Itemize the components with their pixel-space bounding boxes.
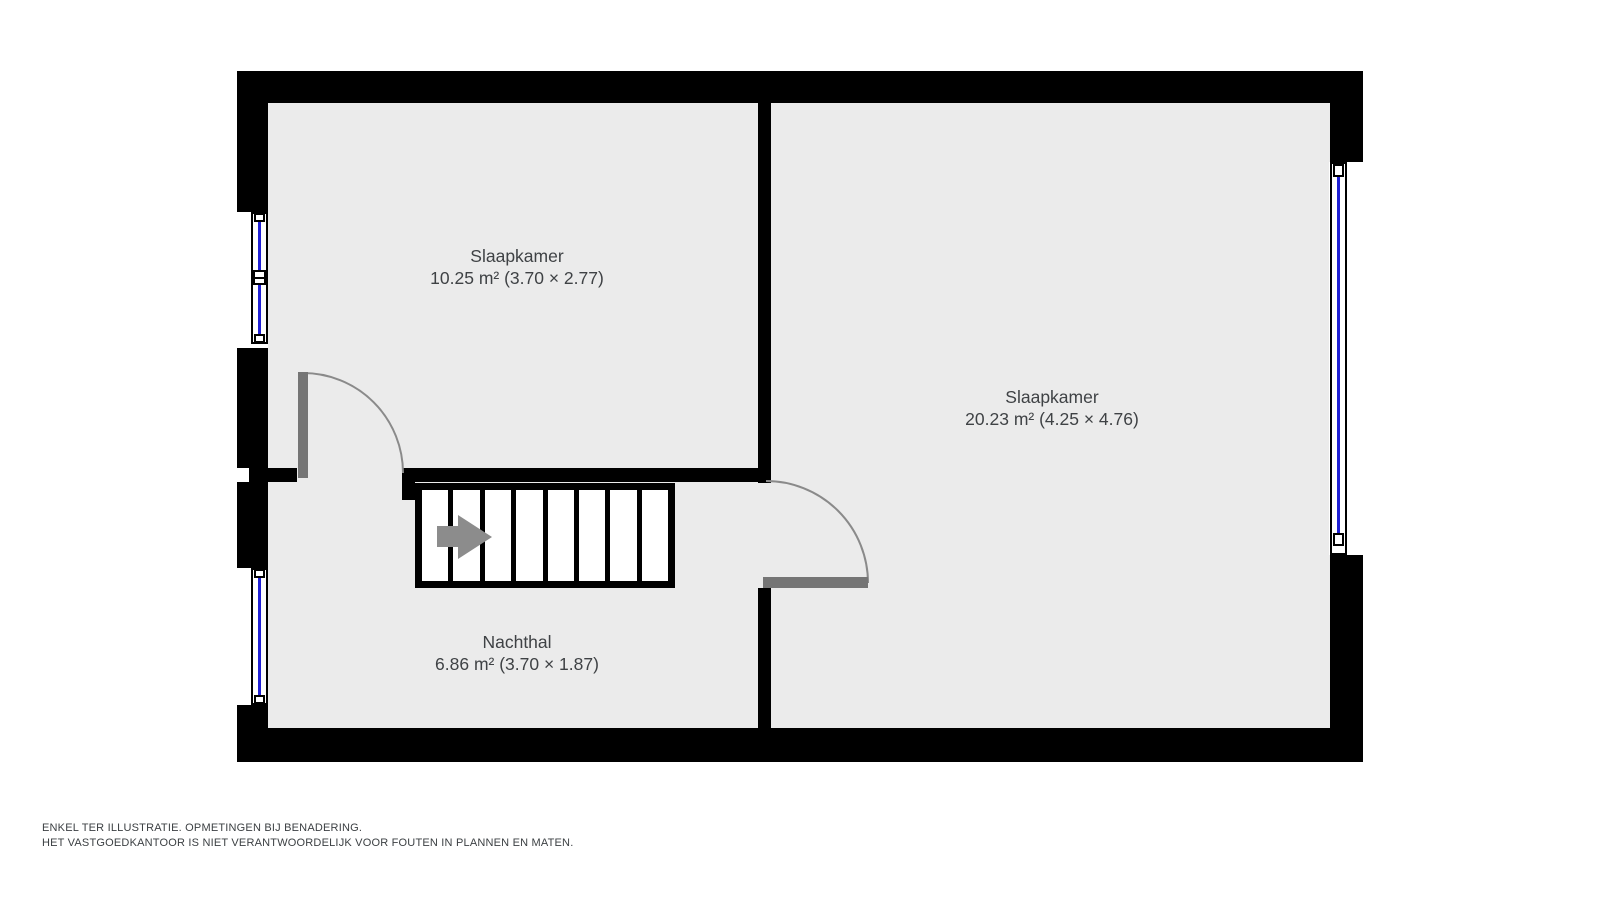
stair-tread	[548, 490, 574, 581]
room-size: 6.86 m² (3.70 × 1.87)	[435, 653, 599, 675]
stair-tread	[579, 490, 605, 581]
wall-above-stairs	[402, 468, 771, 482]
wall-hall-stub-left	[268, 468, 297, 482]
window-right-sash-bottom	[1333, 533, 1344, 546]
window-left-2-sash-bottom	[254, 695, 265, 704]
room-size: 10.25 m² (3.70 × 2.77)	[430, 267, 604, 289]
floor-area	[268, 103, 1330, 728]
room-name: Slaapkamer	[965, 386, 1139, 408]
sash-divider	[255, 277, 264, 279]
disclaimer-line-1: ENKEL TER ILLUSTRATIE. OPMETINGEN BIJ BE…	[42, 821, 573, 836]
stair-tread	[516, 490, 542, 581]
window-left-1-sash-middle	[253, 270, 266, 285]
window-right-glass	[1337, 177, 1340, 534]
room-label-bedroom-right: Slaapkamer 20.23 m² (4.25 × 4.76)	[965, 386, 1139, 430]
window-left-2-sash-top	[254, 569, 265, 578]
room-label-hallway: Nachthal 6.86 m² (3.70 × 1.87)	[435, 631, 599, 675]
window-left-2-glass	[258, 576, 261, 697]
door-leaf-bedroom-right	[763, 577, 868, 588]
disclaimer-text: ENKEL TER ILLUSTRATIE. OPMETINGEN BIJ BE…	[42, 821, 573, 851]
window-left-1-sash-top	[254, 213, 265, 222]
wall-divider-upper	[758, 103, 771, 483]
room-name: Slaapkamer	[430, 245, 604, 267]
wall-divider-lower	[758, 588, 771, 728]
room-size: 20.23 m² (4.25 × 4.76)	[965, 408, 1139, 430]
wall-top	[237, 71, 1363, 103]
wall-bottom	[237, 728, 1363, 762]
stairs-direction-arrow-head-icon	[458, 515, 492, 559]
stair-tread	[642, 490, 668, 581]
disclaimer-line-2: HET VASTGOEDKANTOOR IS NIET VERANTWOORDE…	[42, 836, 573, 851]
stair-tread	[610, 490, 636, 581]
door-jamb-stub	[402, 482, 415, 500]
room-label-bedroom-left: Slaapkamer 10.25 m² (3.70 × 2.77)	[430, 245, 604, 289]
window-right-sash-top	[1333, 164, 1344, 177]
room-name: Nachthal	[435, 631, 599, 653]
wall-recess-left	[233, 468, 249, 482]
window-left-1-sash-bottom	[254, 334, 265, 343]
floorplan-page: Slaapkamer 10.25 m² (3.70 × 2.77) Slaapk…	[0, 0, 1600, 900]
door-leaf-bedroom-left	[298, 372, 308, 478]
stairs-direction-arrow-icon	[437, 526, 459, 547]
